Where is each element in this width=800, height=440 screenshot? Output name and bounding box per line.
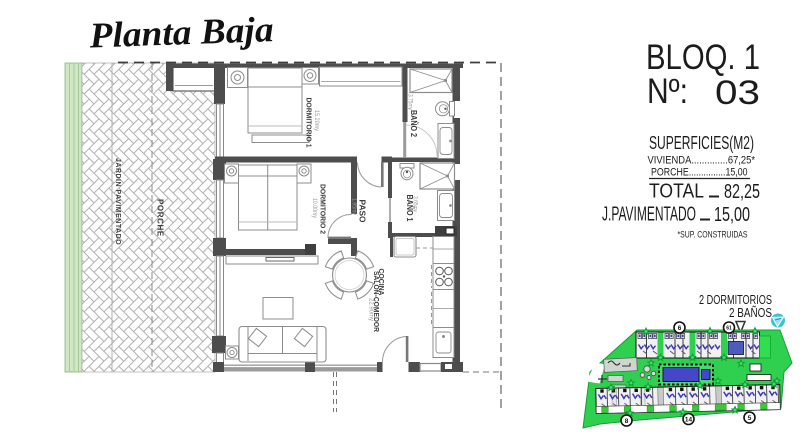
svg-text:8: 8 — [625, 418, 629, 425]
svg-text:15,00: 15,00 — [714, 203, 750, 226]
svg-text:PORCHE: PORCHE — [156, 199, 165, 237]
svg-text:2 DORMITORIOS: 2 DORMITORIOS — [699, 293, 772, 307]
svg-text:1.95my: 1.95my — [351, 198, 357, 215]
svg-text:DORMITORIO 2: DORMITORIO 2 — [319, 184, 328, 234]
svg-text:Nº:: Nº: — [647, 72, 688, 111]
svg-text:DORMITORIO 1: DORMITORIO 1 — [305, 98, 314, 148]
svg-text:PASO: PASO — [358, 200, 367, 223]
svg-text:3.75my: 3.75my — [407, 94, 413, 110]
svg-text:6: 6 — [678, 325, 682, 332]
svg-text:SUPERFICIES(M2): SUPERFICIES(M2) — [649, 132, 754, 153]
svg-text:2 BAÑOS: 2 BAÑOS — [729, 306, 772, 320]
svg-text:JARDIN PAVIMENTADO: JARDIN PAVIMENTADO — [114, 158, 121, 245]
svg-text:03: 03 — [715, 74, 760, 112]
svg-text:82,25: 82,25 — [724, 180, 760, 203]
svg-text:22.90my: 22.90my — [368, 298, 374, 321]
svg-text:15.20my: 15.20my — [313, 110, 319, 131]
svg-text:10.00my: 10.00my — [311, 198, 317, 218]
svg-text:TOTAL: TOTAL — [649, 180, 704, 203]
svg-text:J.PAVIMENTADO: J.PAVIMENTADO — [602, 203, 696, 226]
svg-text:61: 61 — [726, 326, 732, 332]
svg-text:5: 5 — [748, 415, 752, 422]
svg-text:*SUP. CONSTRUIDAS: *SUP. CONSTRUIDAS — [678, 230, 748, 240]
svg-text:Planta Baja: Planta Baja — [88, 9, 274, 55]
svg-text:BAÑO 2: BAÑO 2 — [409, 110, 418, 137]
svg-text:3.65my: 3.65my — [412, 196, 418, 212]
svg-text:PORCHE...............15,00: PORCHE...............15,00 — [651, 167, 748, 179]
svg-text:VIVIENDA..............67,25*: VIVIENDA..............67,25* — [648, 155, 756, 167]
svg-text:14: 14 — [685, 417, 693, 424]
